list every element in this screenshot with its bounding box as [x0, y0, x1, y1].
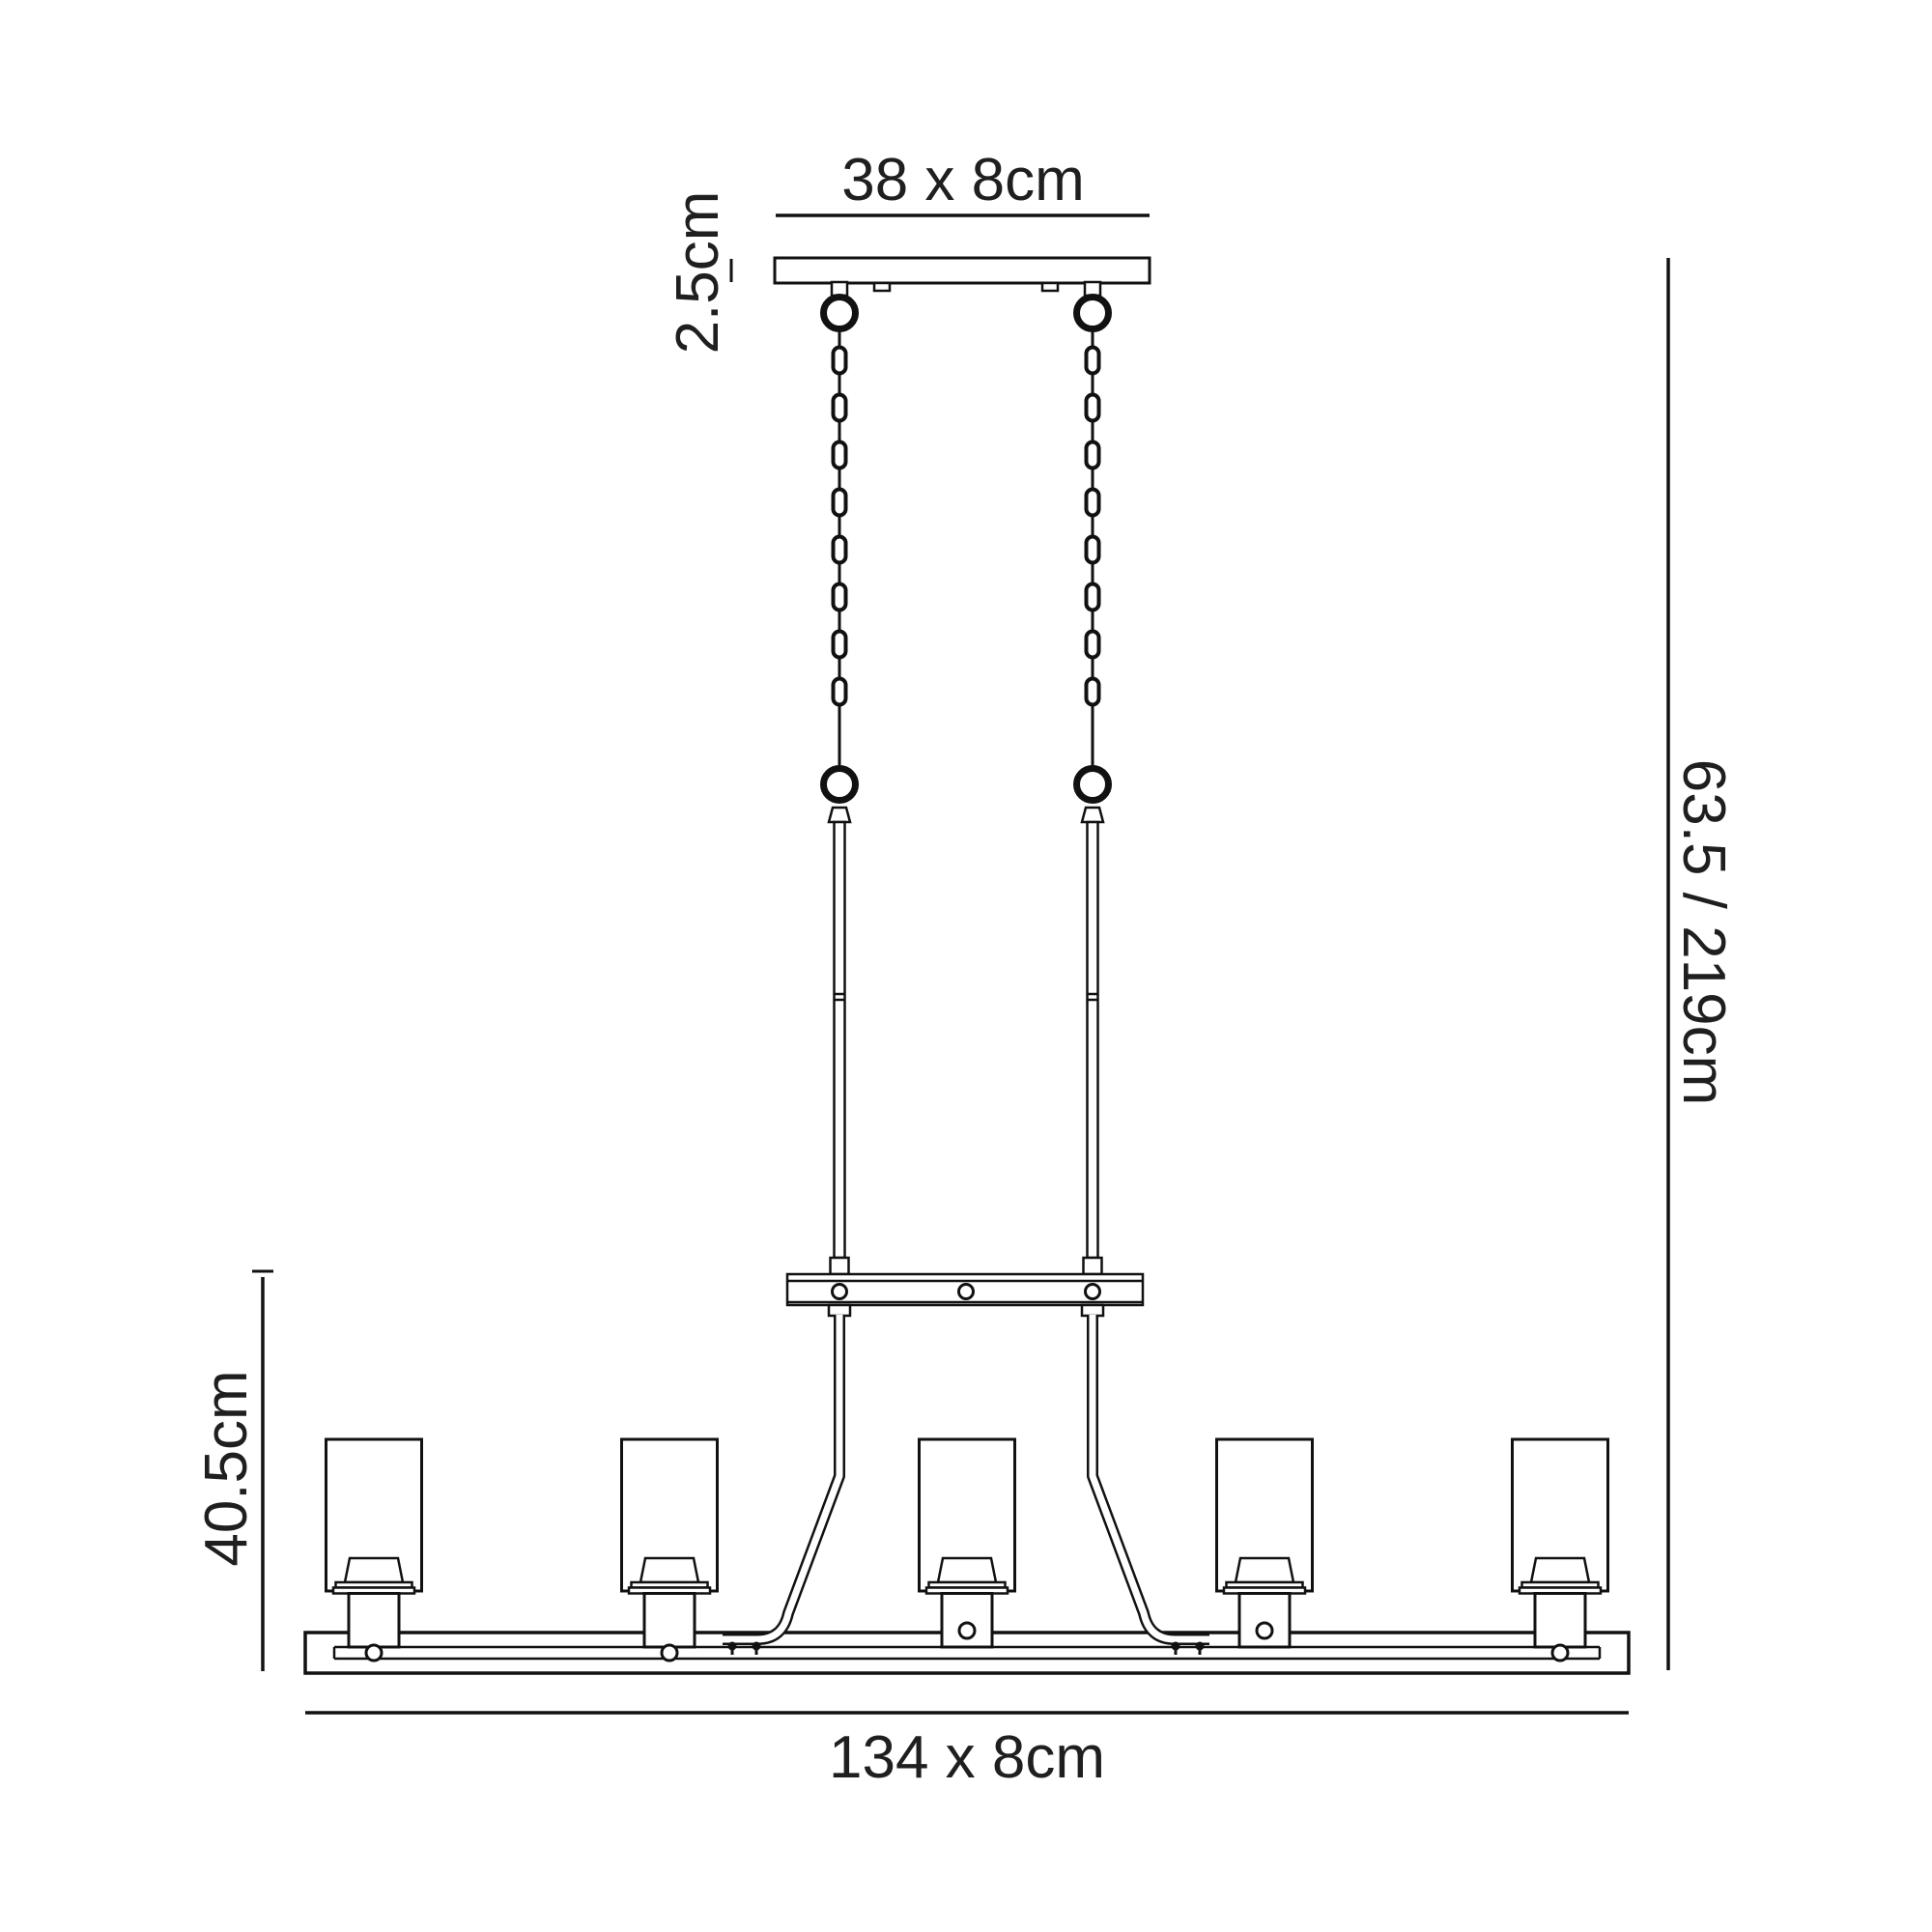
- chain-link: [834, 632, 846, 658]
- lamp-holder: [1531, 1558, 1589, 1582]
- leg-bolt-head: [753, 1642, 761, 1651]
- socket-stem: [644, 1594, 695, 1648]
- canopy-tab: [1042, 283, 1058, 291]
- lamp-holder: [345, 1558, 403, 1582]
- rod-collar: [829, 808, 850, 822]
- support-leg-right: [1093, 1315, 1209, 1639]
- pendant-light-dimension-diagram: 38 x 8cm 2.5cm 63.5 / 219cm 40.5cm 134 x…: [0, 0, 1932, 1932]
- rod-coupler: [831, 1258, 849, 1274]
- body-height-label: 40.5cm: [193, 1370, 260, 1566]
- chain-link: [834, 679, 846, 705]
- rod-collar: [1082, 808, 1103, 822]
- chain-link: [834, 584, 846, 611]
- chain-link: [834, 442, 846, 469]
- overall-height-label: 63.5 / 219cm: [1670, 759, 1737, 1105]
- light-3: [920, 1439, 1015, 1647]
- chain-link: [1087, 632, 1099, 658]
- chain-assembly-right: [1077, 282, 1109, 1274]
- canopy-size-label: 38 x 8cm: [841, 147, 1085, 213]
- rod-coupler: [1084, 1258, 1102, 1274]
- bar-size-label: 134 x 8cm: [829, 1724, 1105, 1791]
- lamp-holder: [938, 1558, 996, 1582]
- canopy-plate: [775, 258, 1150, 283]
- crossbar-screw: [959, 1285, 974, 1299]
- hanger-neck: [1085, 282, 1100, 296]
- lamp-holder: [1236, 1558, 1293, 1582]
- light-2: [622, 1439, 718, 1661]
- socket-screw: [959, 1623, 975, 1638]
- light-4: [1217, 1439, 1313, 1647]
- dimension-diagram-page: 38 x 8cm 2.5cm 63.5 / 219cm 40.5cm 134 x…: [0, 0, 1932, 1932]
- chain-link: [1087, 442, 1099, 469]
- socket-screw: [662, 1645, 677, 1661]
- crossbar: [787, 1274, 1143, 1316]
- crossbar-screw: [1086, 1285, 1100, 1299]
- canopy-height-label: 2.5cm: [665, 191, 731, 355]
- chain-link: [1087, 395, 1099, 421]
- crossbar-nub: [829, 1305, 850, 1316]
- chain-link: [1087, 348, 1099, 374]
- chain-link: [1087, 537, 1099, 563]
- socket-screw: [1552, 1645, 1568, 1661]
- chain-link: [834, 490, 846, 516]
- crossbar-screw: [833, 1285, 847, 1299]
- chain-link: [1087, 679, 1099, 705]
- socket-stem: [349, 1594, 399, 1648]
- hanger-neck: [832, 282, 847, 296]
- socket-screw: [366, 1645, 382, 1661]
- chain-link: [834, 395, 846, 421]
- support-leg-left-core: [723, 1315, 839, 1639]
- chain-link: [1087, 584, 1099, 611]
- chain-link: [834, 348, 846, 374]
- chain-end-ring: [1077, 769, 1109, 801]
- light-1: [327, 1439, 422, 1661]
- support-leg-right-core: [1093, 1315, 1209, 1639]
- canopy-tab: [874, 283, 890, 291]
- chain-assembly-left: [824, 282, 856, 1274]
- leg-bolt-head: [1172, 1642, 1180, 1651]
- chain-end-ring: [824, 769, 856, 801]
- light-5: [1513, 1439, 1608, 1661]
- lamp-holder: [640, 1558, 698, 1582]
- chain-link: [1087, 490, 1099, 516]
- socket-stem: [1535, 1594, 1585, 1648]
- hanger-ring: [1077, 298, 1109, 329]
- socket-screw: [1257, 1623, 1272, 1638]
- suspension-rod: [1088, 822, 1098, 1258]
- suspension-rod: [835, 822, 845, 1258]
- support-leg-left: [723, 1315, 839, 1639]
- leg-bolt-head: [728, 1642, 737, 1651]
- chain-link: [834, 537, 846, 563]
- crossbar-nub: [1082, 1305, 1103, 1316]
- hanger-ring: [824, 298, 856, 329]
- leg-bolt-head: [1196, 1642, 1205, 1651]
